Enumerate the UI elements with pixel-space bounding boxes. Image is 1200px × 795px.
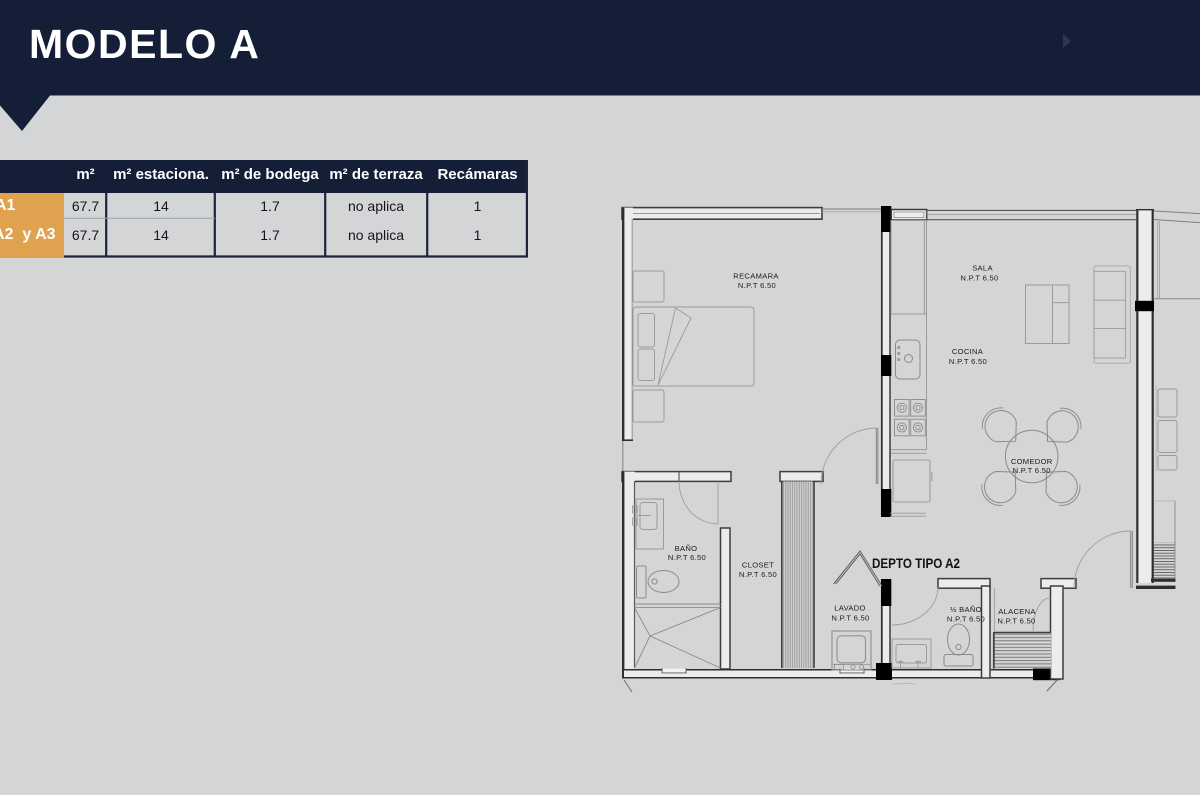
- svg-text:SALA: SALA: [972, 264, 993, 273]
- svg-text:COCINA: COCINA: [952, 347, 984, 356]
- svg-text:N.P.T 6.50: N.P.T 6.50: [738, 281, 776, 290]
- svg-text:N.P.T 6.50: N.P.T 6.50: [949, 357, 987, 366]
- svg-text:N.P.T 6.50: N.P.T 6.50: [739, 570, 777, 579]
- svg-text:COMEDOR: COMEDOR: [1011, 457, 1053, 466]
- svg-text:CLOSET: CLOSET: [742, 561, 774, 570]
- svg-text:RECAMARA: RECAMARA: [733, 272, 779, 281]
- svg-text:N.P.T 6.50: N.P.T 6.50: [1013, 466, 1051, 475]
- svg-text:N.P.T 6.50: N.P.T 6.50: [947, 615, 985, 624]
- svg-text:N.P.T 6.50: N.P.T 6.50: [960, 273, 998, 282]
- svg-text:N.P.T 6.50: N.P.T 6.50: [831, 613, 869, 622]
- svg-text:N.P.T 6.50: N.P.T 6.50: [997, 616, 1035, 625]
- svg-text:ALACENA: ALACENA: [998, 607, 1036, 616]
- svg-text:BAÑO: BAÑO: [675, 544, 698, 553]
- svg-text:LAVADO: LAVADO: [834, 604, 865, 613]
- svg-text:½ BAÑO: ½ BAÑO: [950, 605, 982, 614]
- svg-text:N.P.T 6.50: N.P.T 6.50: [668, 553, 706, 562]
- svg-text:DEPTO TIPO A2: DEPTO TIPO A2: [872, 556, 960, 571]
